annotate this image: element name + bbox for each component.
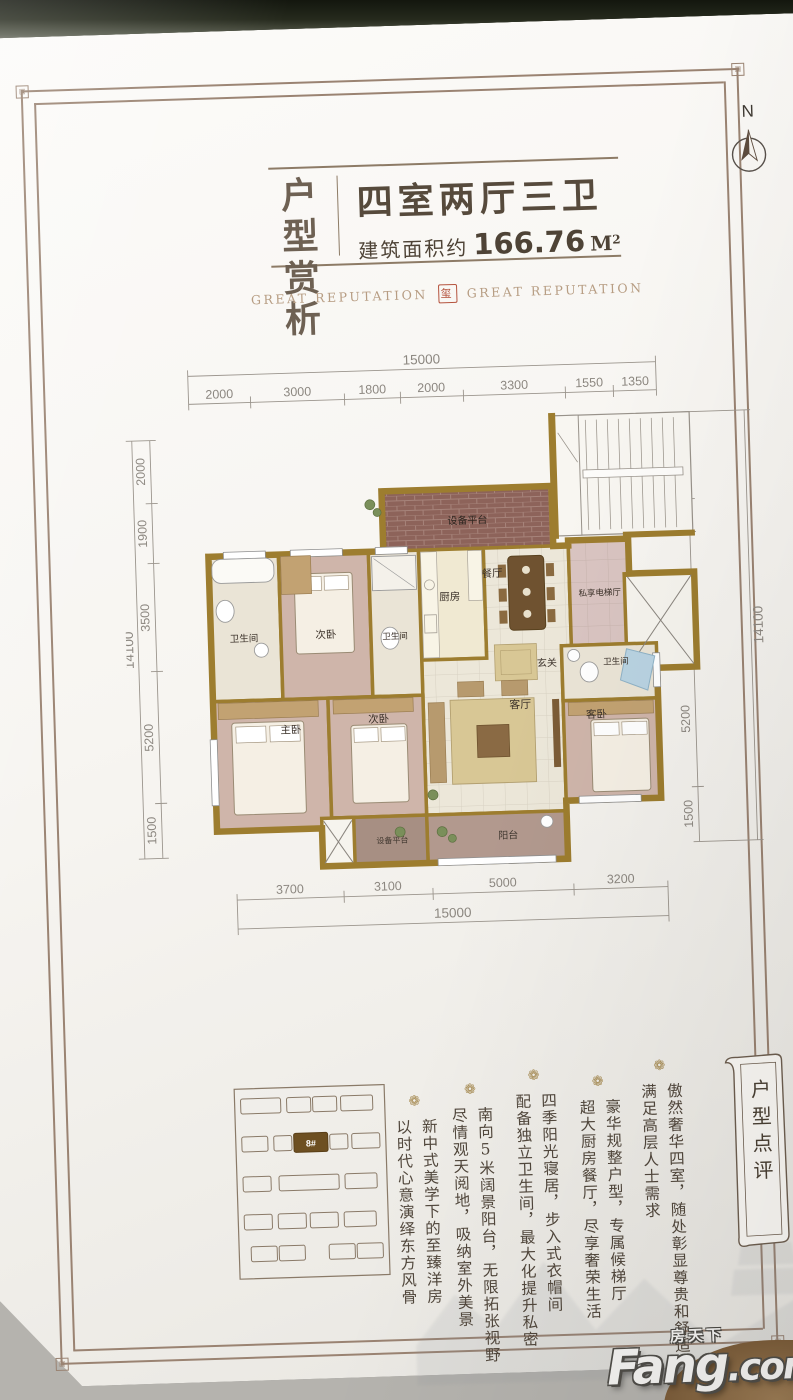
label-living-room: 客厅 [509,697,531,712]
dim-left-seg: 3500 [138,604,153,632]
dim-left-seg: 5200 [142,724,157,752]
dim-bottom-seg: 3100 [374,879,402,894]
dim-left-seg: 1900 [135,520,150,548]
site-highlight-label: 8# [306,1138,316,1148]
comment-column-3: ❁ 四季阳光寝居，步入式衣帽间 配备独立卫生间，最大化提升私密 [508,1067,568,1348]
flower-ornament-icon: ❁ [408,1093,420,1109]
dim-left-seg: 1500 [145,817,160,845]
flower-ornament-icon: ❁ [592,1074,604,1090]
area-unit-sup: 2 [612,232,621,246]
dim-left-seg: 2000 [133,458,148,486]
floor-plan: 15000 2000 3000 1800 2000 3300 1550 1350… [117,334,793,979]
frame-corner-ornament: ▣ [56,1358,69,1371]
compass-n-label: N [741,101,754,120]
area-value: 166.76 [473,224,586,261]
unit-type-block: 四室两厅三卫 建筑面积约 166.76 M2 [338,159,621,264]
label-secondary-bedroom-2: 次卧 [368,712,390,726]
label-master-bedroom: 主卧 [280,723,302,737]
dim-top-seg: 1800 [358,382,386,397]
dim-right-total: 14100 [750,606,766,644]
label-private-elevator-hall: 私享电梯厅 [578,587,621,598]
page-title: 户型 赏析 [268,168,339,266]
dim-top-seg: 2000 [417,380,445,395]
unit-type-title: 四室两厅三卫 [356,166,620,226]
review-banner-text: 户型点评 [747,1078,774,1187]
dim-bottom-seg: 3700 [276,882,304,897]
north-compass-icon: N [720,98,777,188]
dim-top-total: 15000 [402,351,440,367]
label-balcony: 阳台 [498,828,518,842]
page-title-line1: 户型 [280,175,339,260]
frame-corner-ornament: ▣ [16,85,29,98]
dim-bottom-seg: 3200 [607,872,635,887]
comment-column-2: ❁ 豪华规整户型，专属候梯厅 超大厨房餐厅，尽享奢荣生活 [572,1073,631,1320]
label-guest-bedroom: 客卧 [586,707,608,721]
dim-top-seg: 3300 [500,378,528,393]
header-box: 户型 赏析 四室两厅三卫 建筑面积约 166.76 M2 [268,157,621,268]
dim-top-seg: 1550 [575,375,603,390]
photo-backdrop: ▣ ▣ ▣ ▣ 户型 赏析 四室两厅三卫 建筑面积约 166.76 M2 GRE… [0,0,793,1400]
label-equipment-platform-bottom: 设备平台 [376,835,408,846]
poster: ▣ ▣ ▣ ▣ 户型 赏析 四室两厅三卫 建筑面积约 166.76 M2 GRE… [0,0,793,1400]
fang-watermark-suffix: .com [727,1343,793,1389]
site-buildings [240,1095,383,1262]
comment-column-1: ❁ 傲然奢华四室，随处彰显尊贵和舒适 满足高层人士需求 [633,1057,694,1355]
comment-column-4: ❁ 南向5米阔景阳台，无限拓张视野 尽情观天阅地，吸纳室外美景 [444,1081,504,1365]
area-unit: M [590,231,613,256]
comment-column-5: ❁ 新中式美学下的至臻洋房 以时代心意演绎东方风骨 [388,1093,446,1307]
label-dining: 餐厅 [481,567,502,581]
site-plan: 8# [232,1082,394,1283]
stairwell [548,409,695,540]
label-bathroom-2: 卫生间 [382,631,408,642]
label-equipment-platform-top: 设备平台 [447,513,487,527]
label-bathroom-1: 卫生间 [230,632,259,645]
dim-bottom-seg: 5000 [489,875,517,890]
dim-right-seg: 1500 [681,800,696,828]
review-banner-scroll: 户型点评 [713,1046,793,1256]
dim-top-seg: 2000 [205,387,233,402]
flower-ornament-icon: ❁ [527,1068,539,1084]
label-kitchen: 厨房 [439,590,460,604]
dim-top-seg: 1350 [621,374,649,389]
label-bathroom-3: 卫生间 [603,656,629,667]
fang-watermark-cn: 房天下 [670,1324,725,1347]
dim-right-seg: 5200 [678,705,693,733]
dim-bottom-total: 15000 [434,905,472,921]
brand-seal-icon: 玺 [437,284,457,304]
fang-watermark-en: Fang [606,1336,728,1396]
area-prefix: 建筑面积约 [358,236,469,263]
flower-ornament-icon: ❁ [653,1058,665,1074]
dim-top-seg: 3000 [283,385,311,400]
flower-ornament-icon: ❁ [464,1082,476,1098]
label-foyer: 玄关 [537,656,557,670]
frame-corner-ornament: ▣ [731,63,744,76]
label-secondary-bedroom-1: 次卧 [315,628,337,642]
fang-watermark: 房天下 Fang.com [606,1324,793,1400]
